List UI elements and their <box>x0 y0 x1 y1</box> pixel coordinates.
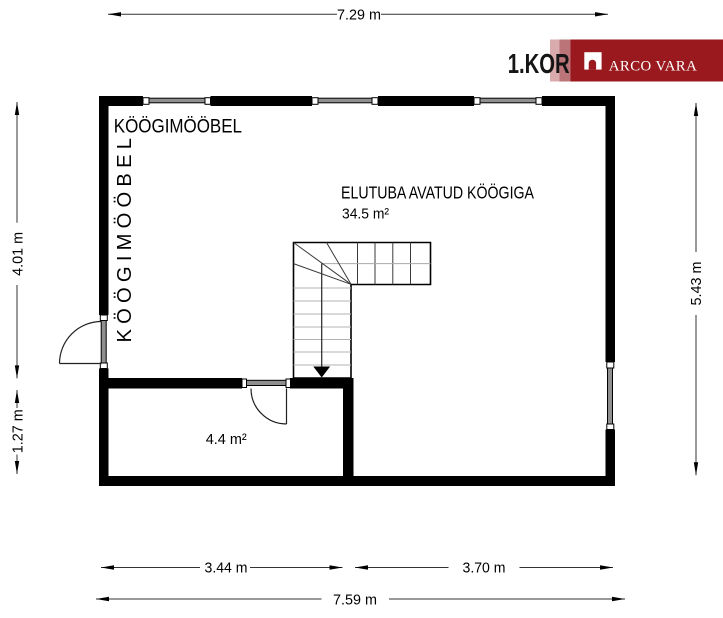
svg-text:3.44 m: 3.44 m <box>205 560 248 576</box>
svg-text:7.29 m: 7.29 m <box>337 8 381 24</box>
svg-text:4.4 m²: 4.4 m² <box>206 431 247 448</box>
svg-text:ARCO VARA: ARCO VARA <box>609 58 697 74</box>
svg-text:KÖÖGIMÖÖBEL: KÖÖGIMÖÖBEL <box>114 138 136 343</box>
svg-text:7.59 m: 7.59 m <box>333 593 377 609</box>
svg-text:1.27 m: 1.27 m <box>10 409 26 453</box>
svg-text:5.43 m: 5.43 m <box>689 262 705 306</box>
svg-text:KÖÖGIMÖÖBEL: KÖÖGIMÖÖBEL <box>114 116 242 138</box>
svg-text:ELUTUBA AVATUD KÖÖGIGA: ELUTUBA AVATUD KÖÖGIGA <box>341 183 534 203</box>
svg-text:4.01 m: 4.01 m <box>10 232 26 276</box>
svg-text:1.KOR: 1.KOR <box>508 48 570 79</box>
svg-text:3.70 m: 3.70 m <box>463 560 506 576</box>
svg-text:34.5 m²: 34.5 m² <box>342 205 389 222</box>
